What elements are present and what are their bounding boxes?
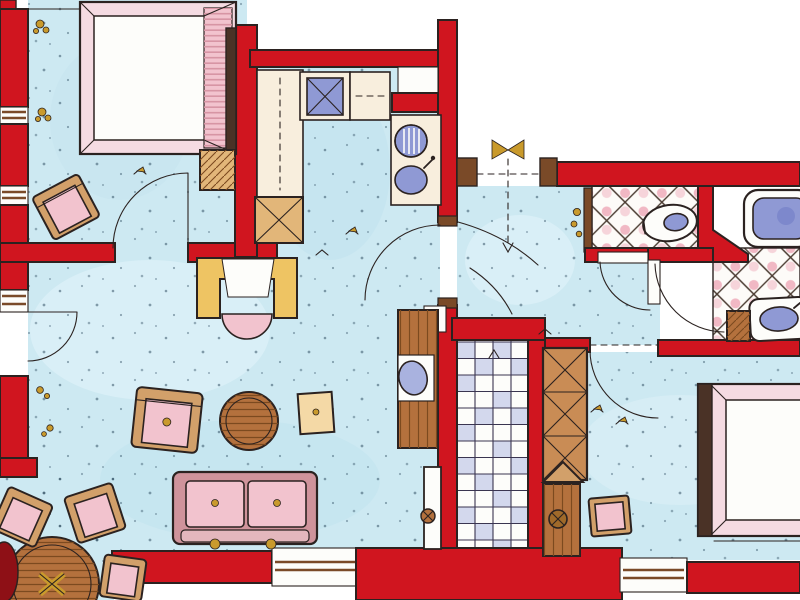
wall-stairs-top [452, 318, 545, 340]
wall-entrance-top [557, 162, 800, 186]
wall-top-left-stub [0, 0, 16, 9]
floor-plan-canvas [0, 0, 800, 600]
wall-bottom-right [687, 562, 800, 593]
duct-shaft [398, 67, 438, 93]
entrance-door-post-right [540, 158, 557, 186]
window-left-3 [0, 290, 28, 312]
washbasin [749, 297, 800, 342]
kitchen-door-post-top [438, 216, 457, 226]
wall-bottom-center [356, 548, 622, 600]
wall-kitchen-top [250, 50, 442, 67]
cooktop [395, 125, 427, 157]
side-table [298, 392, 335, 434]
wc-door-frame [584, 188, 592, 252]
bedroom2-stool [588, 495, 631, 536]
bed1 [80, 2, 236, 154]
window-bottom-living [272, 548, 358, 586]
stairs-open-door-leaf [421, 467, 441, 549]
wall-left-1 [0, 9, 28, 107]
window-left-2 [0, 186, 28, 205]
window-bottom-bedroom2 [620, 558, 687, 592]
desk [395, 310, 438, 448]
window-left-1 [0, 107, 28, 124]
dining-chair-3 [99, 554, 146, 600]
wall-bathroom-bottom [658, 340, 800, 356]
wall-kitchen-stub [392, 93, 438, 112]
wall-bedroom1-bottom [0, 243, 115, 262]
nightstand1 [200, 150, 235, 190]
wardrobe [543, 348, 587, 480]
dresser [543, 484, 580, 556]
floor-plan-image [0, 0, 800, 600]
bed1-headboard [226, 28, 236, 150]
living-armchair [131, 387, 203, 454]
bed2-headboard [698, 384, 712, 536]
kitchen-appliance [255, 197, 303, 243]
bed2 [698, 384, 800, 541]
coffee-table [220, 392, 278, 450]
wall-left-4-jut [0, 458, 37, 477]
entrance-door-post-left [457, 158, 477, 186]
kitchen-sink [307, 78, 343, 115]
stairwell [457, 340, 529, 556]
wall-left-2 [0, 124, 28, 186]
bathroom-cabinet [727, 311, 750, 341]
bathtub [744, 190, 800, 247]
sofa [173, 472, 317, 549]
